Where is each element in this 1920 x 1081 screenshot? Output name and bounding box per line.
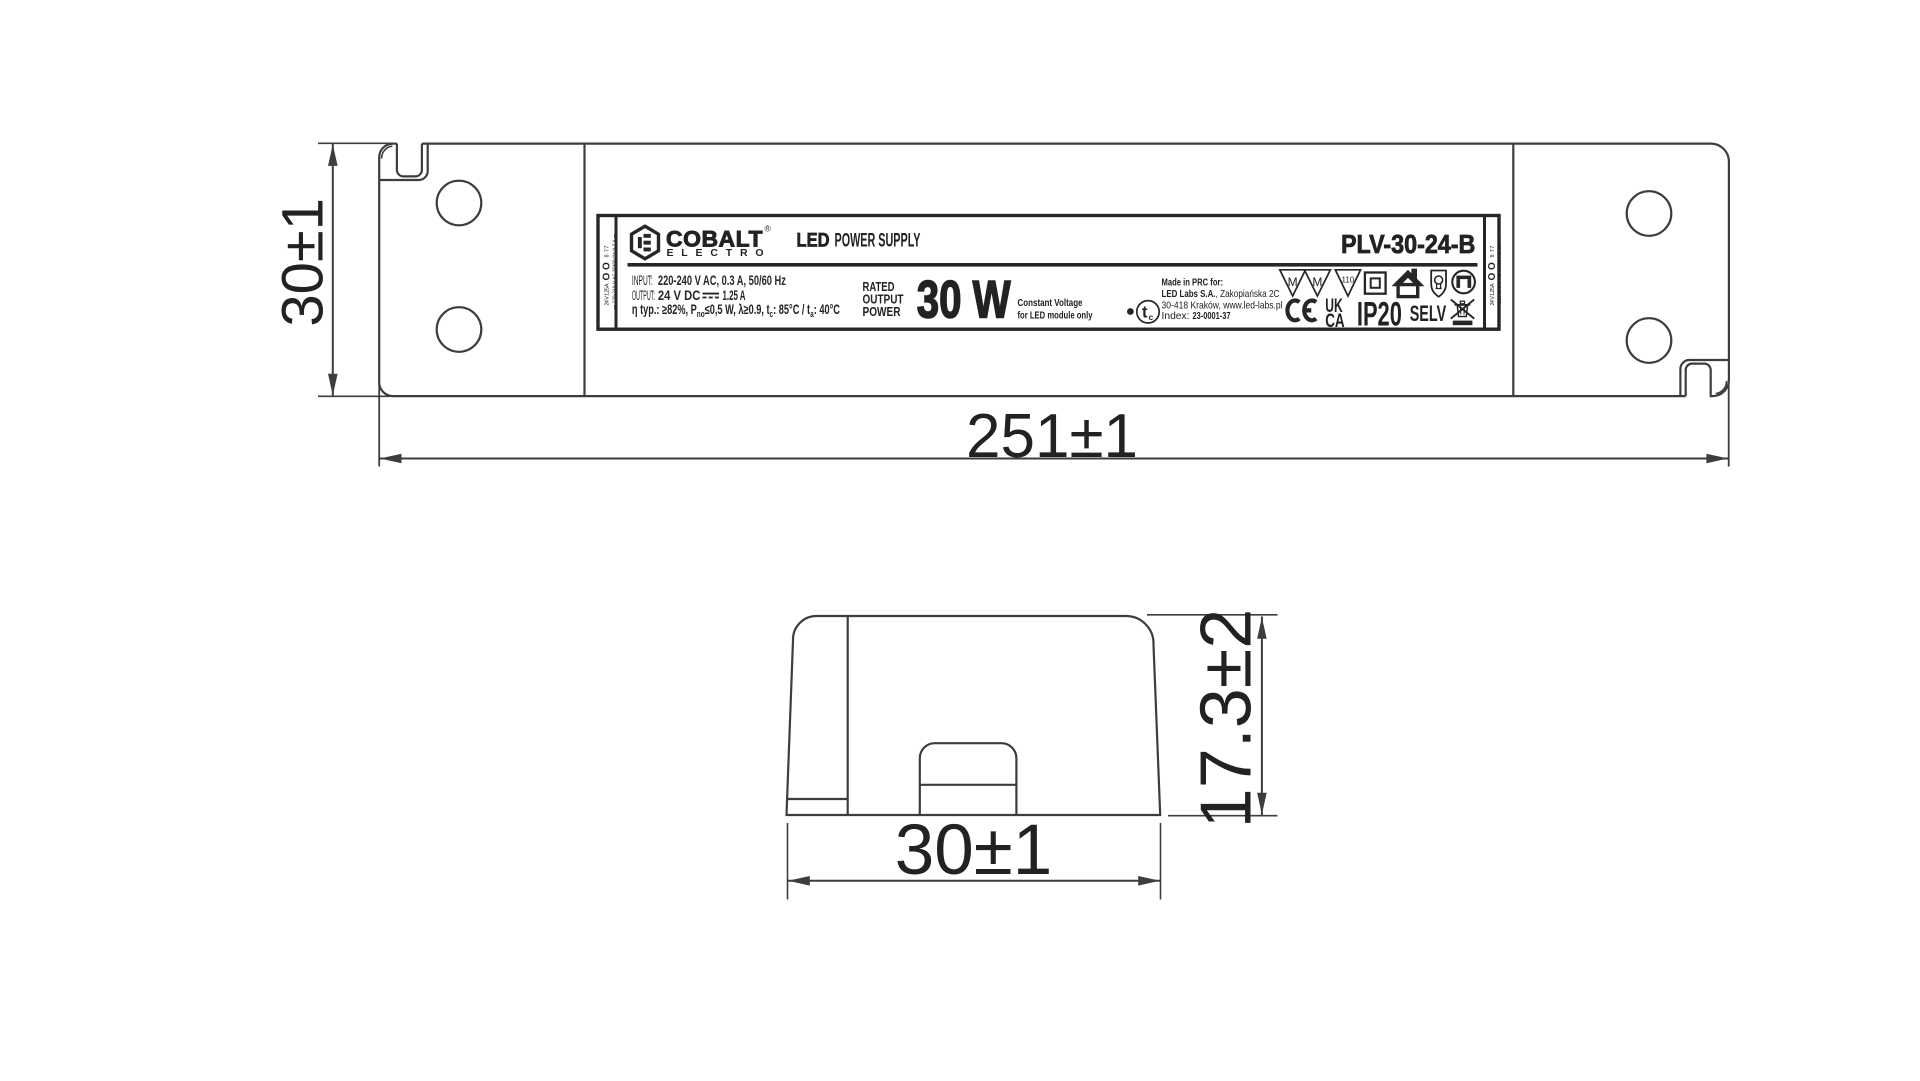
svg-text:Index:23-0001-37: Index:23-0001-37 <box>1162 310 1231 322</box>
svg-text:M: M <box>1288 275 1298 289</box>
svg-text:PLV-30-24-B: PLV-30-24-B <box>1341 229 1475 259</box>
svg-text:— 220-240 V AC 50/60 Hz 0.3 A: — 220-240 V AC 50/60 Hz 0.3 A — <box>1497 233 1502 310</box>
svg-text:OUTPUT:24 V DC: OUTPUT:24 V DC <box>632 288 701 303</box>
svg-text:SELV: SELV <box>1410 301 1447 326</box>
svg-text:M: M <box>1312 275 1322 289</box>
svg-text:30±1: 30±1 <box>895 811 1052 890</box>
svg-text:24 V 1.25 A: 24 V 1.25 A <box>1490 283 1496 305</box>
svg-text:LED Labs S.A., Zakopiańska 2C: LED Labs S.A., Zakopiańska 2C <box>1162 288 1280 300</box>
svg-text:17.3±2: 17.3±2 <box>1186 609 1266 829</box>
svg-text:t: t <box>1142 304 1148 322</box>
svg-text:1.25 A: 1.25 A <box>723 288 746 303</box>
svg-text:Constant Voltage: Constant Voltage <box>1018 297 1083 309</box>
svg-text:IP20: IP20 <box>1357 296 1402 334</box>
svg-text:110: 110 <box>1342 276 1355 285</box>
svg-text:8 77: 8 77 <box>1490 246 1496 258</box>
svg-text:POWER: POWER <box>863 305 901 319</box>
svg-text:— 220-240 V AC 50/60 Hz 0.3 A: — 220-240 V AC 50/60 Hz 0.3 A — <box>612 233 617 310</box>
svg-text:30±1: 30±1 <box>271 198 336 327</box>
svg-text:8 77: 8 77 <box>605 246 611 258</box>
svg-text:for LED module only: for LED module only <box>1018 310 1093 322</box>
svg-text:c: c <box>1149 312 1154 322</box>
svg-text:24 V 1.25 A: 24 V 1.25 A <box>605 283 611 305</box>
svg-text:251±1: 251±1 <box>966 402 1138 471</box>
svg-text:LEDPOWER SUPPLY: LEDPOWER SUPPLY <box>797 231 921 252</box>
svg-text:30 W: 30 W <box>917 271 1011 330</box>
svg-text:®: ® <box>765 224 772 234</box>
svg-text:Made in PRC for:: Made in PRC for: <box>1162 276 1224 288</box>
svg-text:CA: CA <box>1325 311 1345 332</box>
